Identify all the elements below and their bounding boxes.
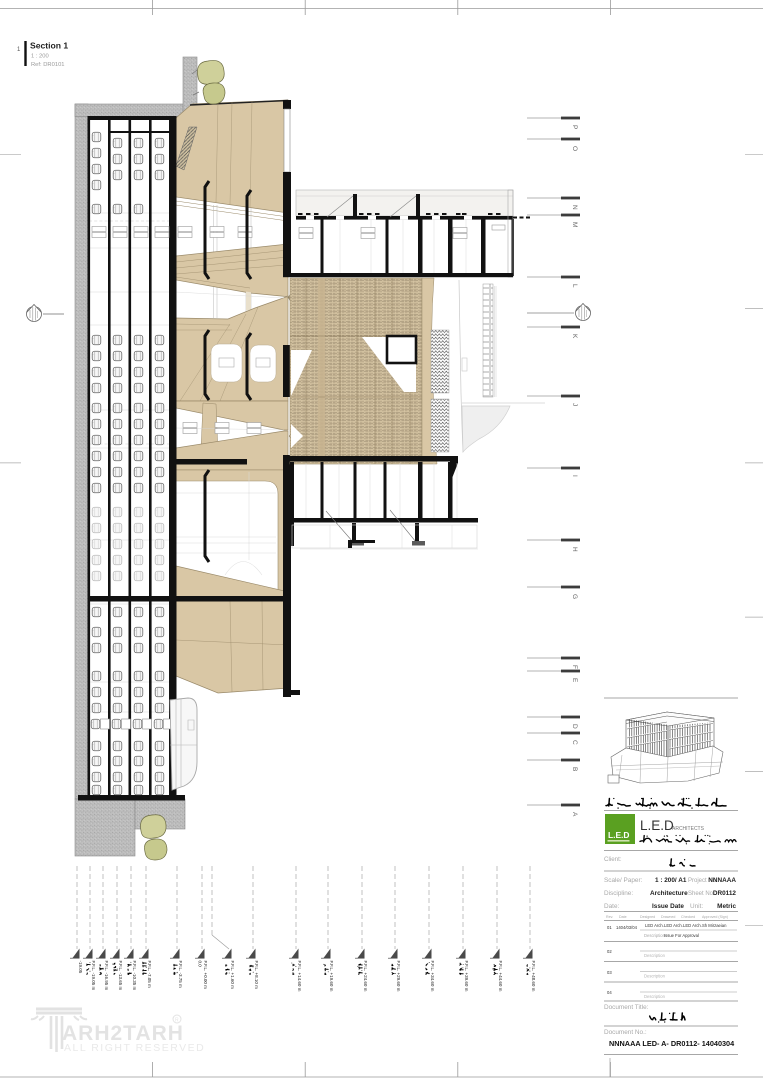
svg-text:Metric: Metric <box>717 903 736 910</box>
svg-text:F.F.L. +48.60 m: F.F.L. +48.60 m <box>531 961 536 992</box>
svg-text:Client:: Client: <box>604 856 622 863</box>
svg-text:F.F.L. -3.75 m: F.F.L. -3.75 m <box>178 961 183 989</box>
svg-text:F.F.L. +8.10 m: F.F.L. +8.10 m <box>254 961 259 990</box>
svg-text:F.F.L. +39.60 m: F.F.L. +39.60 m <box>464 961 469 992</box>
svg-text:NNNAAA: NNNAAA <box>708 877 736 884</box>
svg-text:Date: Date <box>619 915 627 919</box>
svg-text:Document Title:: Document Title: <box>604 1004 649 1011</box>
svg-text:-19.05: -19.05 <box>78 961 83 974</box>
svg-text:C: C <box>571 740 578 745</box>
svg-text:Sh Mirzaeian: Sh Mirzaeian <box>702 923 727 928</box>
svg-text:LED Arch.: LED Arch. <box>664 923 683 928</box>
svg-text:I: I <box>571 475 578 477</box>
svg-text:Discipline:: Discipline: <box>604 890 633 897</box>
svg-text:B: B <box>571 767 578 771</box>
svg-text:Description:: Description: <box>644 933 666 938</box>
svg-text:Description: Description <box>644 974 666 979</box>
svg-text:M: M <box>571 222 578 227</box>
svg-text:Checked: Checked <box>681 915 695 919</box>
svg-text:F.F.L. +44.60 m: F.F.L. +44.60 m <box>498 961 503 992</box>
svg-text:DR0112: DR0112 <box>713 890 737 897</box>
svg-text:L: L <box>571 284 578 288</box>
svg-text:04: 04 <box>607 990 612 995</box>
svg-text:Date:: Date: <box>604 903 619 910</box>
svg-text:F.F.L. -13.65 m: F.F.L. -13.65 m <box>118 961 123 991</box>
svg-text:Issue For Approval: Issue For Approval <box>664 933 699 938</box>
svg-text:Issue Date: Issue Date <box>652 903 684 910</box>
svg-text:H: H <box>571 547 578 552</box>
svg-text:J: J <box>571 403 578 406</box>
svg-text:Approved (Sign): Approved (Sign) <box>702 915 728 919</box>
svg-text:Drawned: Drawned <box>661 915 675 919</box>
svg-text:F.F.L. +19.60 m: F.F.L. +19.60 m <box>329 961 334 992</box>
svg-text:1 : 200: 1 : 200 <box>31 54 49 60</box>
svg-text:R: R <box>175 1018 179 1024</box>
svg-text:F.F.L. +29.60 m: F.F.L. +29.60 m <box>396 961 401 992</box>
svg-text:O: O <box>571 146 578 151</box>
svg-text:1 : 200/ A1: 1 : 200/ A1 <box>655 877 687 884</box>
svg-text:Scale/ Paper:: Scale/ Paper: <box>604 877 643 884</box>
svg-text:Rev.: Rev. <box>606 915 613 919</box>
svg-text:F.F.L. +24.60 m: F.F.L. +24.60 m <box>363 961 368 992</box>
svg-text:02: 02 <box>607 949 612 954</box>
svg-text:Designed: Designed <box>640 915 655 919</box>
svg-text:Description: Description <box>644 994 666 999</box>
svg-text:Ref: DR0101: Ref: DR0101 <box>31 62 65 68</box>
svg-text:P: P <box>571 125 578 129</box>
svg-text:LED Arch.: LED Arch. <box>645 923 664 928</box>
svg-text:N: N <box>571 205 578 210</box>
svg-text:Description: Description <box>644 953 666 958</box>
svg-text:L.E.D: L.E.D <box>640 818 674 833</box>
svg-text:ARCHITECTS: ARCHITECTS <box>672 826 705 832</box>
svg-text:G: G <box>571 594 578 599</box>
svg-text:03: 03 <box>607 970 612 975</box>
svg-text:Architecture: Architecture <box>650 890 688 897</box>
svg-text:NNNAAA LED- A- DR0112- 1404030: NNNAAA LED- A- DR0112- 14040304 <box>609 1039 735 1048</box>
svg-text:F.F.L. -16.95 m: F.F.L. -16.95 m <box>104 961 109 991</box>
svg-text:Unit:: Unit: <box>690 903 703 910</box>
svg-text:1404/03/04: 1404/03/04 <box>616 925 638 930</box>
svg-text:F.F.L. +1.60 m: F.F.L. +1.60 m <box>230 961 235 990</box>
svg-text:A: A <box>571 812 578 817</box>
svg-text:F.F.L. -19.05 m: F.F.L. -19.05 m <box>91 961 96 991</box>
svg-text:F.F.L. -10.35 m: F.F.L. -10.35 m <box>132 961 137 991</box>
svg-text:Document No.:: Document No.: <box>604 1029 647 1036</box>
svg-text:K: K <box>571 334 578 339</box>
svg-text:F.F.L. +14.60 m: F.F.L. +14.60 m <box>297 961 302 992</box>
svg-text:0.0: 0.0 <box>198 961 203 968</box>
svg-text:F.F.L. +34.60 m: F.F.L. +34.60 m <box>430 961 435 992</box>
svg-text:ALL RIGHT RESERVED: ALL RIGHT RESERVED <box>64 1042 205 1054</box>
svg-text:LED Arch.: LED Arch. <box>683 923 702 928</box>
svg-text:D: D <box>571 724 578 729</box>
svg-text:F.F.L. +0.00 m: F.F.L. +0.00 m <box>203 961 208 990</box>
svg-text:E: E <box>571 678 578 683</box>
svg-text:F.F.L. -7.05 m: F.F.L. -7.05 m <box>147 961 152 989</box>
svg-text:F: F <box>571 665 578 669</box>
svg-text:01: 01 <box>607 925 612 930</box>
svg-text:Section 1: Section 1 <box>30 41 68 51</box>
svg-text:L.E.D: L.E.D <box>608 830 629 840</box>
